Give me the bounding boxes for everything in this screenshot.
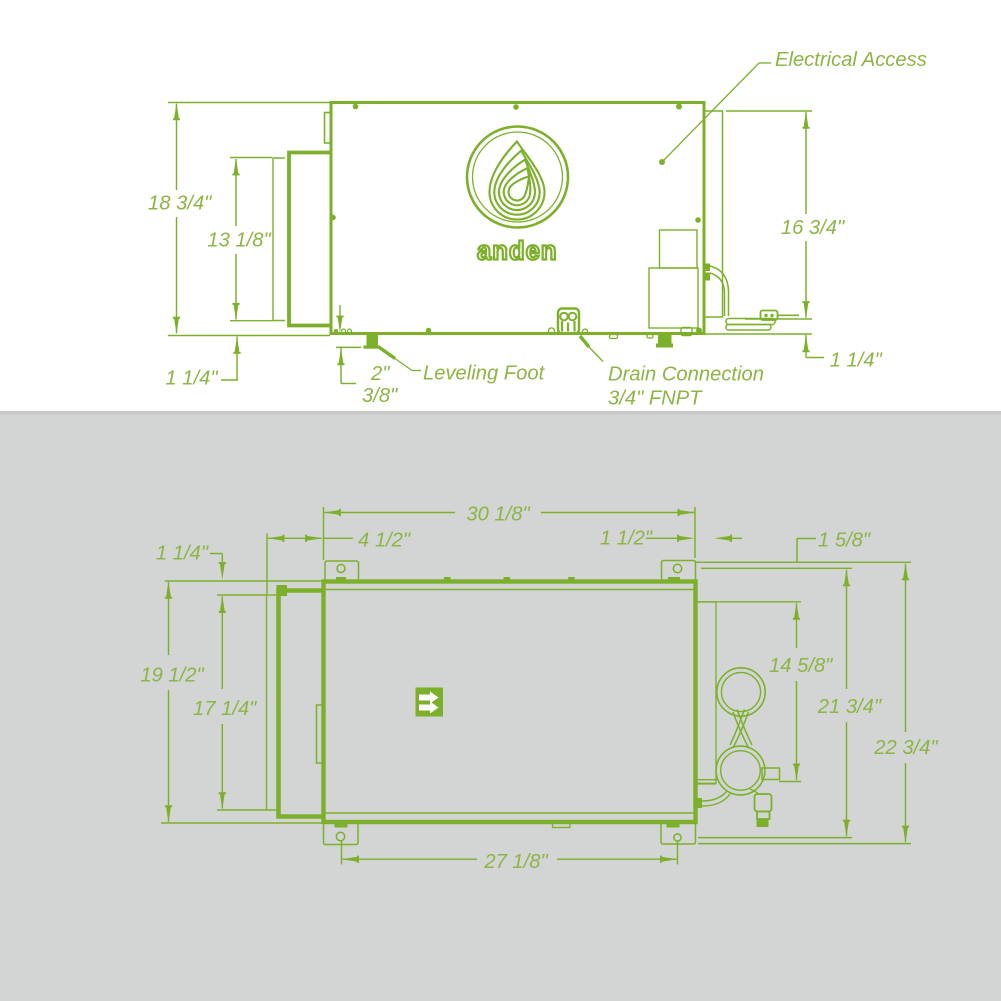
svg-text:4 1/2": 4 1/2": [358, 530, 411, 552]
svg-text:21 3/4": 21 3/4": [817, 696, 882, 718]
svg-text:27 1/8": 27 1/8": [483, 851, 548, 873]
svg-text:1 1/4": 1 1/4": [165, 368, 218, 390]
svg-text:17 1/4": 17 1/4": [193, 698, 257, 720]
svg-text:anden: anden: [477, 238, 558, 266]
svg-text:Drain Connection: Drain Connection: [608, 364, 764, 386]
svg-text:1 1/2": 1 1/2": [600, 528, 653, 550]
svg-text:14 5/8": 14 5/8": [769, 655, 833, 677]
svg-text:Electrical Access: Electrical Access: [775, 49, 927, 71]
svg-text:18 3/4": 18 3/4": [148, 193, 212, 215]
svg-text:30 1/8": 30 1/8": [466, 504, 530, 526]
svg-text:1 1/4": 1 1/4": [156, 543, 209, 565]
svg-text:1 1/4": 1 1/4": [830, 350, 883, 372]
svg-text:19 1/2": 19 1/2": [140, 665, 204, 687]
svg-text:3/4" FNPT: 3/4" FNPT: [608, 388, 703, 410]
svg-text:2": 2": [370, 363, 390, 385]
svg-text:Leveling Foot: Leveling Foot: [423, 363, 546, 385]
svg-text:22 3/4": 22 3/4": [873, 737, 938, 759]
svg-text:3/8": 3/8": [362, 385, 398, 407]
svg-text:13 1/8": 13 1/8": [207, 230, 271, 252]
svg-text:1 5/8": 1 5/8": [818, 530, 871, 552]
svg-text:16 3/4": 16 3/4": [781, 217, 845, 239]
